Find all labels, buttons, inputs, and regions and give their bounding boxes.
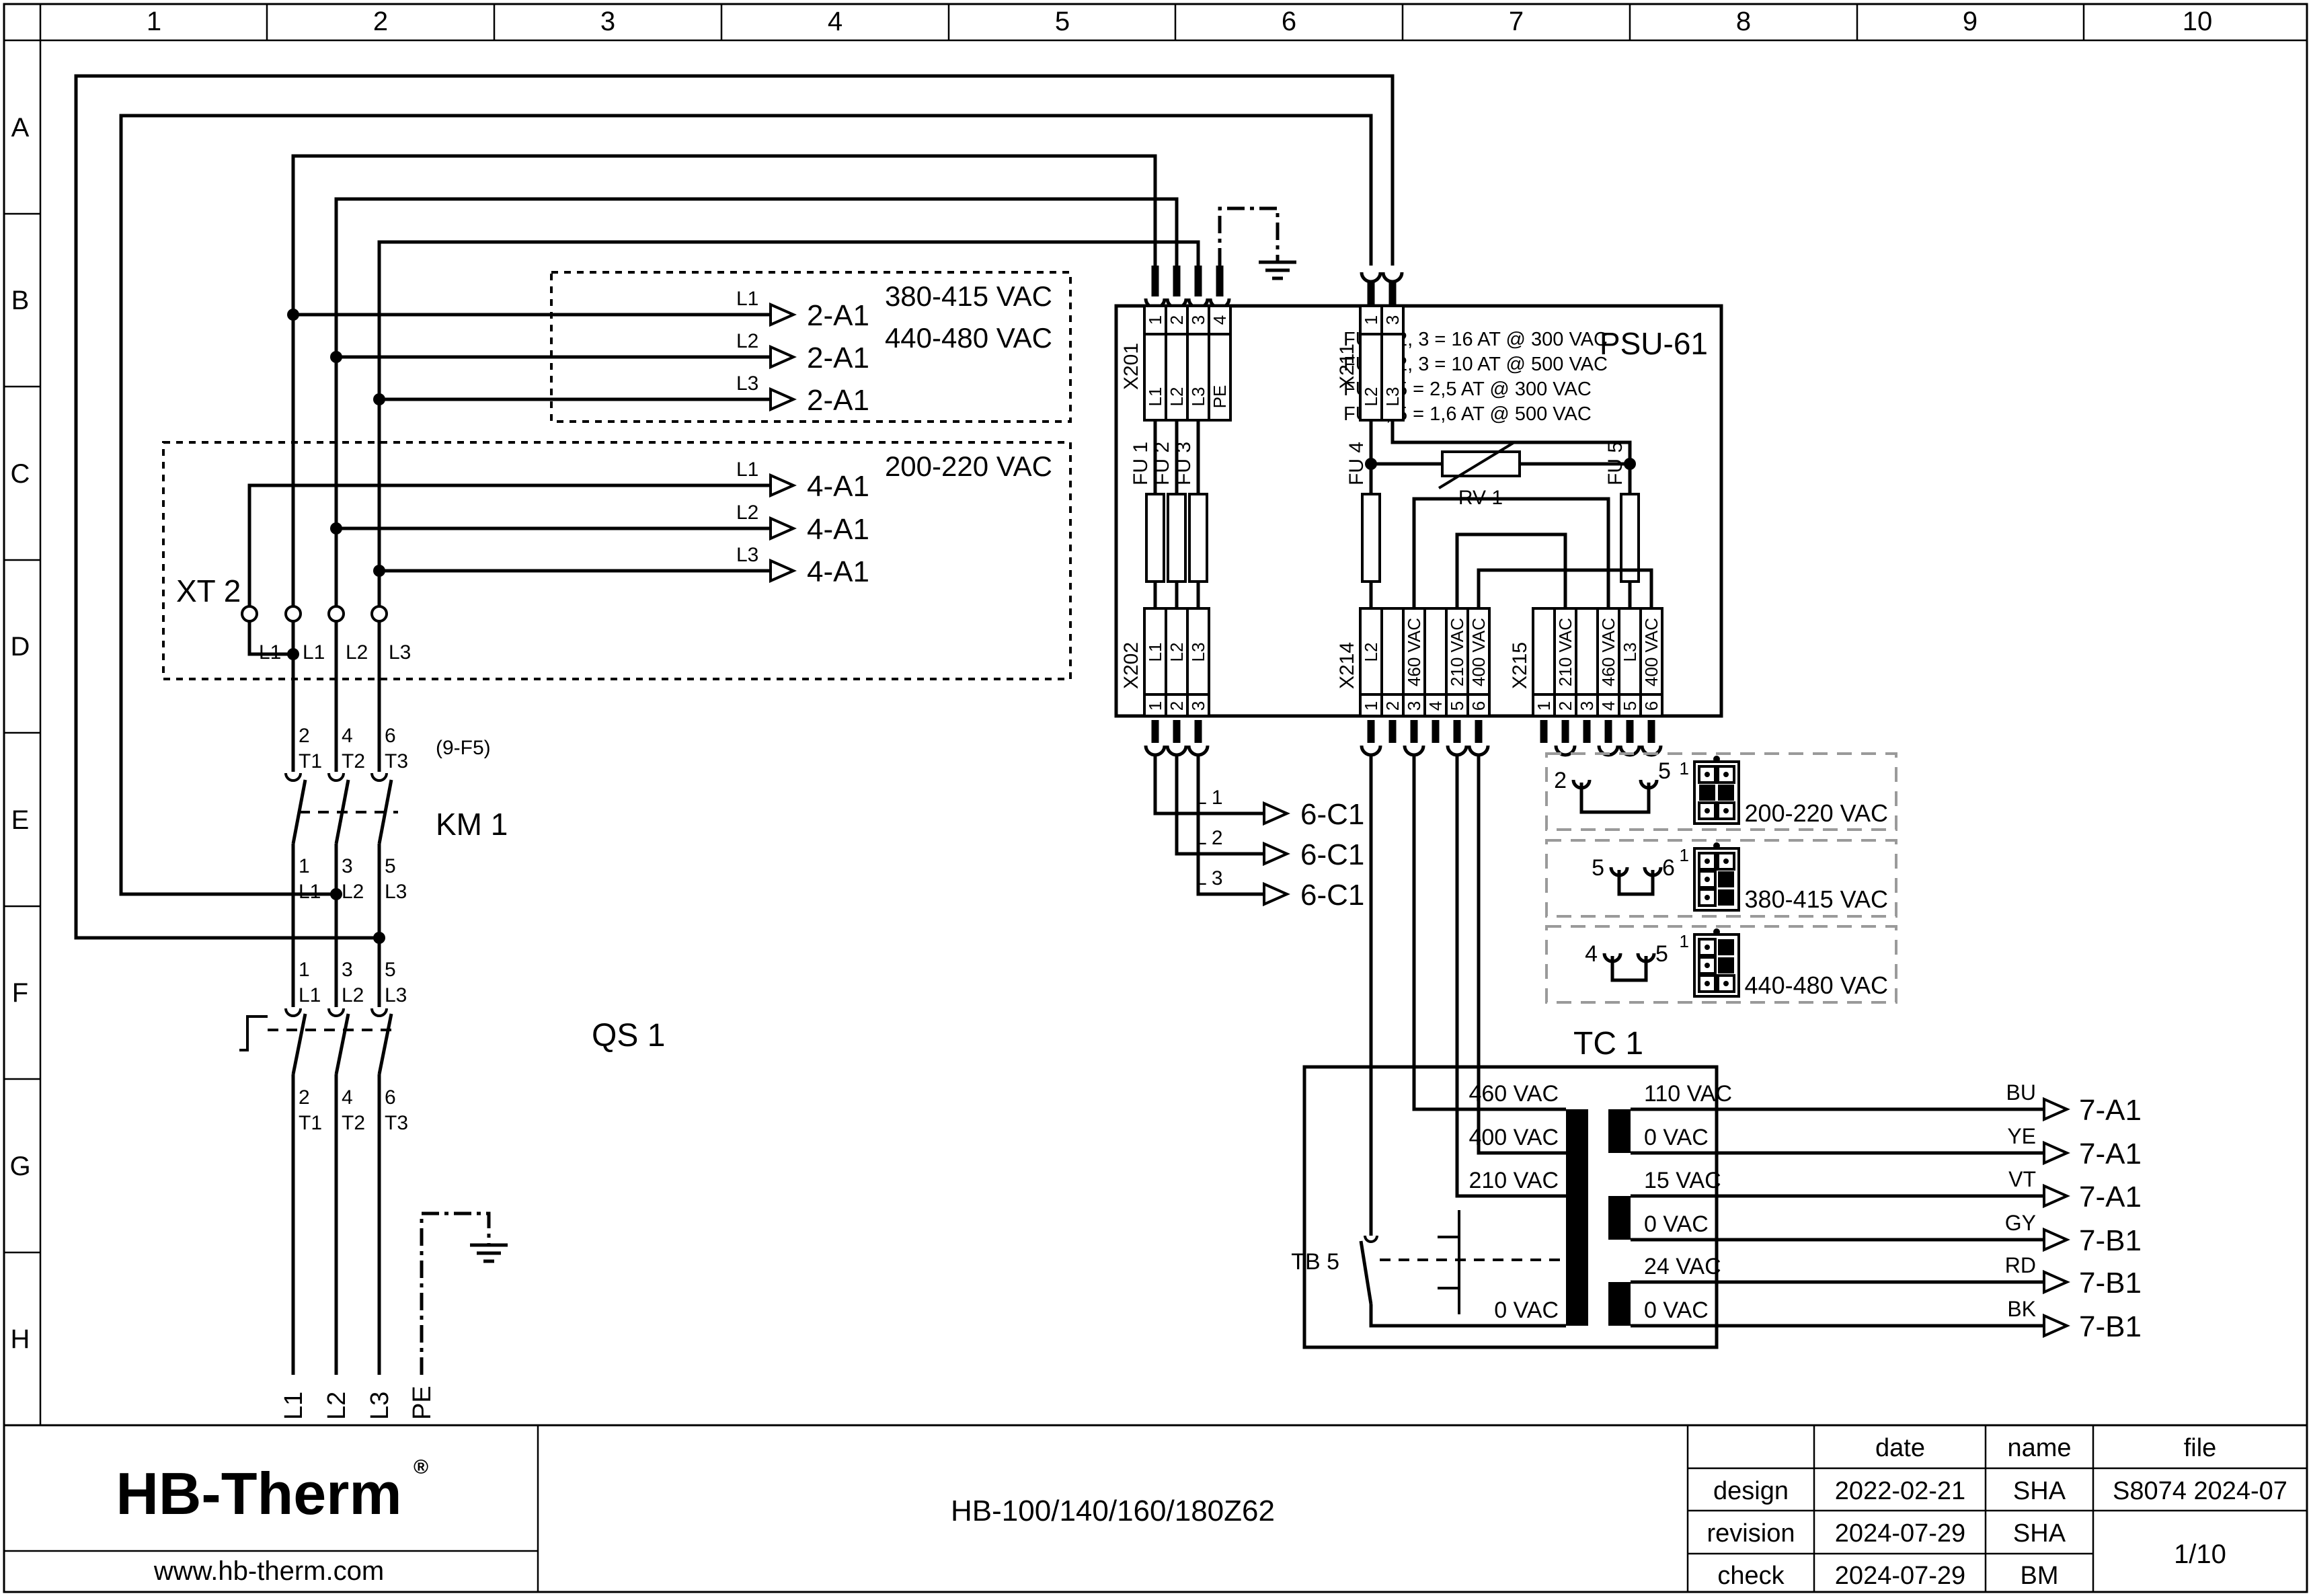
jumper2-voltage-label: 380-415 VAC: [1745, 885, 1888, 913]
tc1-primary-400: 400 VAC: [1468, 1125, 1559, 1150]
row-label-B: B: [11, 286, 30, 315]
x214-name-5: 210 VAC: [1447, 618, 1467, 686]
jumper-box-380-415: 5 6 1 380-415 VAC: [1546, 840, 1896, 916]
row-label-F: F: [12, 978, 28, 1008]
title-block: HB-Therm ® www.hb-therm.com HB-100/140/1…: [4, 1425, 2307, 1592]
x214-name-3: 460 VAC: [1404, 618, 1424, 686]
x201-name-2: L2: [1167, 387, 1187, 407]
output-target-6: 7-B1: [2079, 1310, 2142, 1343]
row-label-D: D: [11, 632, 30, 662]
x215-num-5: 5: [1620, 701, 1640, 711]
x202-label: X202: [1120, 642, 1142, 689]
x211-name-l2: L2: [1361, 387, 1381, 407]
x201-num-3: 3: [1188, 315, 1208, 325]
col-label-7: 7: [1509, 7, 1524, 36]
km1-pole1-top-name: T1: [299, 750, 322, 772]
mains-l2-label: L2: [323, 1392, 351, 1420]
x202-name-2: L2: [1167, 643, 1187, 662]
wire-color-bk: BK: [2007, 1297, 2036, 1321]
x214-label: X214: [1336, 642, 1358, 689]
x215-num-2: 2: [1555, 701, 1575, 711]
design-name: SHA: [2013, 1477, 2066, 1505]
output-target-2: 7-A1: [2079, 1138, 2142, 1170]
row-label-C: C: [11, 459, 30, 489]
file-number: S8074 2024-07: [2113, 1477, 2287, 1505]
x202-num-1: 1: [1145, 701, 1165, 711]
voltage-select-elbows: [1414, 499, 1651, 608]
jumper1-pin-a: 2: [1554, 768, 1567, 793]
qs1-pole2-top-num: 3: [342, 959, 353, 981]
km1-pole2-bot-name: L2: [342, 881, 364, 903]
km1-pole3-top-num: 6: [385, 725, 396, 747]
x214-num-1: 1: [1361, 701, 1381, 711]
km1-pole1-top-num: 2: [299, 725, 310, 747]
tc1-secondary-15: 15 VAC: [1644, 1168, 1721, 1193]
x201-label: X201: [1120, 343, 1142, 390]
high-row2-phase: L2: [736, 330, 758, 352]
x214-num-3: 3: [1404, 701, 1424, 711]
col-label-2: 2: [373, 7, 388, 36]
ruler-row-ticks: [4, 214, 40, 1252]
high-row1-target: 2-A1: [807, 299, 869, 332]
xt2-pin2-label: L1: [303, 641, 325, 664]
km1-pole3-bot-name: L3: [385, 881, 407, 903]
revision-row-label: revision: [1707, 1519, 1795, 1548]
x202-num-2: 2: [1167, 701, 1187, 711]
x201-name-1: L1: [1145, 387, 1165, 407]
col-header-file: file: [2184, 1434, 2217, 1462]
col-label-6: 6: [1282, 7, 1296, 36]
row-label-H: H: [11, 1324, 30, 1354]
wire-color-bu: BU: [2006, 1080, 2036, 1105]
x201-connector: X201 1 2 3 4 L1 L2 L3 PE: [1120, 266, 1230, 420]
wire-color-ye: YE: [2007, 1124, 2036, 1148]
c1-row3-target: 6-C1: [1300, 879, 1364, 912]
x202-connector: X202 L1 L2 L3 1 2 3: [1120, 608, 1209, 755]
low-row3-target: 4-A1: [807, 555, 869, 588]
c1-outputs: L 1 L 2 L 3 6-C1 6-C1 6-C1: [1155, 756, 1364, 912]
fu4-label: FU 4: [1345, 442, 1368, 485]
km1-pole2-top-name: T2: [342, 750, 365, 772]
mains-l3-label: L3: [366, 1392, 394, 1420]
x202-name-1: L1: [1145, 643, 1165, 662]
x214-connector: X214 L2 460 VAC 210 VAC 400 VAC 1 2 3 4 …: [1336, 608, 1489, 755]
wire-color-vt: VT: [2008, 1167, 2036, 1191]
tc1-secondary-24: 24 VAC: [1644, 1254, 1721, 1279]
x215-name-5: L3: [1620, 643, 1640, 662]
col-label-8: 8: [1736, 7, 1751, 36]
x215-name-4: 460 VAC: [1598, 618, 1618, 686]
x215-name-6: 400 VAC: [1641, 618, 1661, 686]
x214-num-5: 5: [1447, 701, 1467, 711]
x214-num-6: 6: [1468, 701, 1489, 711]
xt2-pin3-label: L2: [346, 641, 368, 664]
jumper2-pin-b: 6: [1662, 855, 1675, 881]
ruler-column-labels: 1 2 3 4 5 6 7 8 9 10: [147, 7, 2212, 36]
x201-num-2: 2: [1167, 315, 1187, 325]
x201-name-3: L3: [1188, 387, 1208, 407]
ground-icon: [470, 1245, 508, 1261]
low-row3-phase: L3: [736, 544, 758, 566]
x211-label: X211: [1336, 344, 1358, 389]
tc1-output-arrows: BU YE VT GY RD BK 7-A1 7-A1 7-A1 7-B1 7-…: [2005, 1080, 2142, 1343]
c1-row1-target: 6-C1: [1300, 798, 1364, 831]
tc1-secondary-110: 110 VAC: [1644, 1081, 1732, 1107]
fuse-group-fu4-5: FU 4 FU 5 RV 1: [1345, 420, 1639, 608]
x211-name-l3: L3: [1382, 387, 1403, 407]
high-row2-target: 2-A1: [807, 342, 869, 374]
ground-icon-psu: [1259, 262, 1296, 278]
psu-label: PSU-61: [1600, 326, 1708, 361]
high-row3-phase: L3: [736, 372, 758, 395]
xt2-pin4-label: L3: [389, 641, 411, 664]
check-name: BM: [2021, 1562, 2059, 1590]
jumper-box-440-480: 4 5 1 440-480 VAC: [1546, 926, 1896, 1002]
output-target-4: 7-B1: [2079, 1224, 2142, 1257]
x202-name-3: L3: [1188, 643, 1208, 662]
revision-date: 2024-07-29: [1835, 1519, 1965, 1548]
col-label-4: 4: [828, 7, 843, 36]
page-number: 1/10: [2174, 1540, 2226, 1569]
jumper1-pin-b: 5: [1658, 758, 1671, 784]
output-target-5: 7-B1: [2079, 1267, 2142, 1300]
low-row1-phase: L1: [736, 458, 758, 481]
check-row-label: check: [1717, 1562, 1785, 1590]
col-label-5: 5: [1055, 7, 1070, 36]
x215-num-6: 6: [1641, 701, 1661, 711]
vac-box-high: 380-415 VAC 440-480 VAC L1 L2 L3 2-A1 2-…: [287, 272, 1070, 422]
qs1-pole1-top-name: L1: [299, 984, 321, 1006]
x201-name-4: PE: [1210, 385, 1230, 409]
row-label-G: G: [9, 1152, 30, 1181]
qs1-pole3-top-name: L3: [385, 984, 407, 1006]
mains-l1-label: L1: [280, 1392, 308, 1420]
company-logo: HB-Therm ®: [116, 1456, 428, 1527]
design-row-label: design: [1713, 1477, 1789, 1505]
x202-num-3: 3: [1188, 701, 1208, 711]
x215-name-2: 210 VAC: [1555, 618, 1575, 686]
c1-row2-phase: L 2: [1196, 827, 1223, 849]
mains-entry: L1 L2 L3 PE: [280, 1213, 508, 1420]
logo-registered-mark: ®: [414, 1456, 428, 1478]
jumper-option-boxes: 2 5 1 200-220 VAC 5 6: [1546, 754, 1896, 1002]
x215-num-3: 3: [1577, 701, 1597, 711]
company-website: www.hb-therm.com: [153, 1556, 384, 1586]
row-label-A: A: [11, 113, 30, 143]
psu-box: PSU-61 FU 1, 2, 3 = 16 AT @ 300 VAC FU 1…: [1116, 208, 1721, 755]
qs1-pole2-bot-num: 4: [342, 1086, 353, 1109]
qs1-handle: [239, 1016, 268, 1050]
col-label-3: 3: [600, 7, 615, 36]
qs1-pole2-bot-name: T2: [342, 1112, 365, 1134]
c1-row3-phase: L 3: [1196, 867, 1223, 889]
vac-box-low: 200-220 VAC L1 L2 L3 4-A1 4-A1 4-A1 XT 2…: [163, 442, 1070, 772]
km1-pole2-bot-num: 3: [342, 855, 353, 877]
connector2-pin1-label: 1: [1680, 845, 1689, 865]
row-label-E: E: [11, 805, 30, 835]
logo-text: HB-Therm: [116, 1460, 401, 1527]
tc1-secondary-core-2: [1608, 1196, 1631, 1240]
high-row1-phase: L1: [736, 288, 758, 310]
tc1-primary-210: 210 VAC: [1468, 1168, 1559, 1193]
x214-name-6: 400 VAC: [1468, 618, 1489, 686]
qs1-pole3-bot-num: 6: [385, 1086, 396, 1109]
tc1-primary-core: [1566, 1109, 1588, 1326]
qs1-pole3-bot-name: T3: [385, 1112, 408, 1134]
col-label-1: 1: [147, 7, 161, 36]
ruler-column-ticks: [267, 4, 2084, 40]
jumper1-voltage-label: 200-220 VAC: [1745, 799, 1888, 827]
x215-num-4: 4: [1598, 701, 1618, 711]
output-target-3: 7-A1: [2079, 1181, 2142, 1213]
x215-label: X215: [1509, 642, 1531, 689]
fuse-group-fu1-3: FU 1 FU 2 FU 3: [1130, 420, 1207, 608]
x214-name-1: L2: [1361, 643, 1381, 662]
fu1-label: FU 1: [1130, 442, 1152, 485]
design-date: 2022-02-21: [1835, 1477, 1965, 1505]
col-label-9: 9: [1963, 7, 1977, 36]
vac-high-line-1: 380-415 VAC: [885, 280, 1052, 312]
qs1-pole1-top-num: 1: [299, 959, 310, 981]
qs1-pole1-bot-num: 2: [299, 1086, 310, 1109]
revision-name: SHA: [2013, 1519, 2066, 1548]
tc1-primary-0: 0 VAC: [1494, 1298, 1559, 1323]
x201-num-4: 4: [1210, 315, 1230, 325]
qs1-pole2-top-name: L2: [342, 984, 364, 1006]
x214-num-4: 4: [1425, 701, 1446, 711]
pe-wire: [422, 1213, 489, 1375]
col-header-date: date: [1875, 1434, 1925, 1462]
xt2-label: XT 2: [176, 573, 241, 608]
fu2-label: FU 2: [1151, 442, 1173, 485]
mains-pe-label: PE: [408, 1386, 436, 1420]
tb5-label: TB 5: [1291, 1249, 1339, 1275]
c1-row2-target: 6-C1: [1300, 838, 1364, 871]
tc1-secondary-core-3: [1608, 1282, 1631, 1326]
km1-pole1-bot-num: 1: [299, 855, 310, 877]
x201-num-1: 1: [1145, 315, 1165, 325]
km1-pole3-bot-num: 5: [385, 855, 396, 877]
c1-row1-phase: L 1: [1196, 787, 1223, 809]
schematic-page: 1 2 3 4 5 6 7 8 9 10 A B C D E F G H: [0, 0, 2311, 1596]
tc1-secondary-core-1: [1608, 1109, 1631, 1153]
x211-num-3: 3: [1382, 315, 1403, 325]
high-row3-target: 2-A1: [807, 384, 869, 417]
vac-low-line: 200-220 VAC: [885, 450, 1052, 482]
check-date: 2024-07-29: [1835, 1562, 1965, 1590]
tc1-secondary-0b: 0 VAC: [1644, 1211, 1709, 1237]
jumper2-pin-a: 5: [1592, 855, 1604, 881]
km1-cross-ref: (9-F5): [436, 737, 491, 759]
output-target-1: 7-A1: [2079, 1094, 2142, 1127]
drawing-title: HB-100/140/160/180Z62: [951, 1494, 1275, 1527]
jumper3-pin-b: 5: [1655, 941, 1668, 967]
col-label-10: 10: [2183, 7, 2213, 36]
qs1-pole3-top-num: 5: [385, 959, 396, 981]
connector-icon-440-480: 1: [1680, 928, 1739, 996]
col-header-name: name: [2007, 1434, 2071, 1462]
wire-color-gy: GY: [2005, 1211, 2036, 1235]
jumper3-voltage-label: 440-480 VAC: [1745, 971, 1888, 999]
connector3-pin1-label: 1: [1680, 931, 1689, 951]
tc1-primary-460: 460 VAC: [1468, 1081, 1559, 1107]
connector-icon-380-415: 1: [1680, 842, 1739, 910]
qs1-pole1-bot-name: T1: [299, 1112, 322, 1134]
jumper-box-200-220: 2 5 1 200-220 VAC: [1546, 754, 1896, 830]
vac-high-line-2: 440-480 VAC: [885, 322, 1052, 354]
km1-pole3-top-name: T3: [385, 750, 408, 772]
jumper3-pin-a: 4: [1585, 941, 1598, 967]
km1-label: KM 1: [436, 807, 508, 842]
x215-connector: X215 210 VAC 460 VAC L3 400 VAC 1 2 3 4 …: [1509, 608, 1662, 755]
km1-pole2-top-num: 4: [342, 725, 353, 747]
qs1-label: QS 1: [592, 1018, 665, 1053]
tc1-secondary-0c: 0 VAC: [1644, 1298, 1709, 1323]
connector-icon-200-220: 1: [1680, 756, 1739, 824]
tc1-label: TC 1: [1573, 1026, 1643, 1062]
x215-num-1: 1: [1534, 701, 1554, 711]
km1-pole1-bot-name: L1: [299, 881, 321, 903]
qs1-disconnect: 1 L1 3 L2 5 L3 2 T1 4 T2 6 T3 QS 1: [239, 959, 665, 1375]
low-row2-target: 4-A1: [807, 513, 869, 546]
tc1-secondary-0a: 0 VAC: [1644, 1125, 1709, 1150]
low-row2-phase: L2: [736, 502, 758, 524]
km1-contactor: 2 T1 4 T2 6 T3 1 L1 3 L2 5 L3 (9-F5) KM …: [286, 725, 508, 1007]
wire-color-rd: RD: [2005, 1253, 2036, 1277]
x214-num-2: 2: [1382, 701, 1403, 711]
fu3-label: FU 3: [1173, 442, 1195, 485]
x201-pe-ground-wire: [1220, 208, 1278, 266]
connector1-pin1-label: 1: [1680, 758, 1689, 779]
x211-num-1: 1: [1361, 315, 1381, 325]
low-row1-target: 4-A1: [807, 470, 869, 503]
